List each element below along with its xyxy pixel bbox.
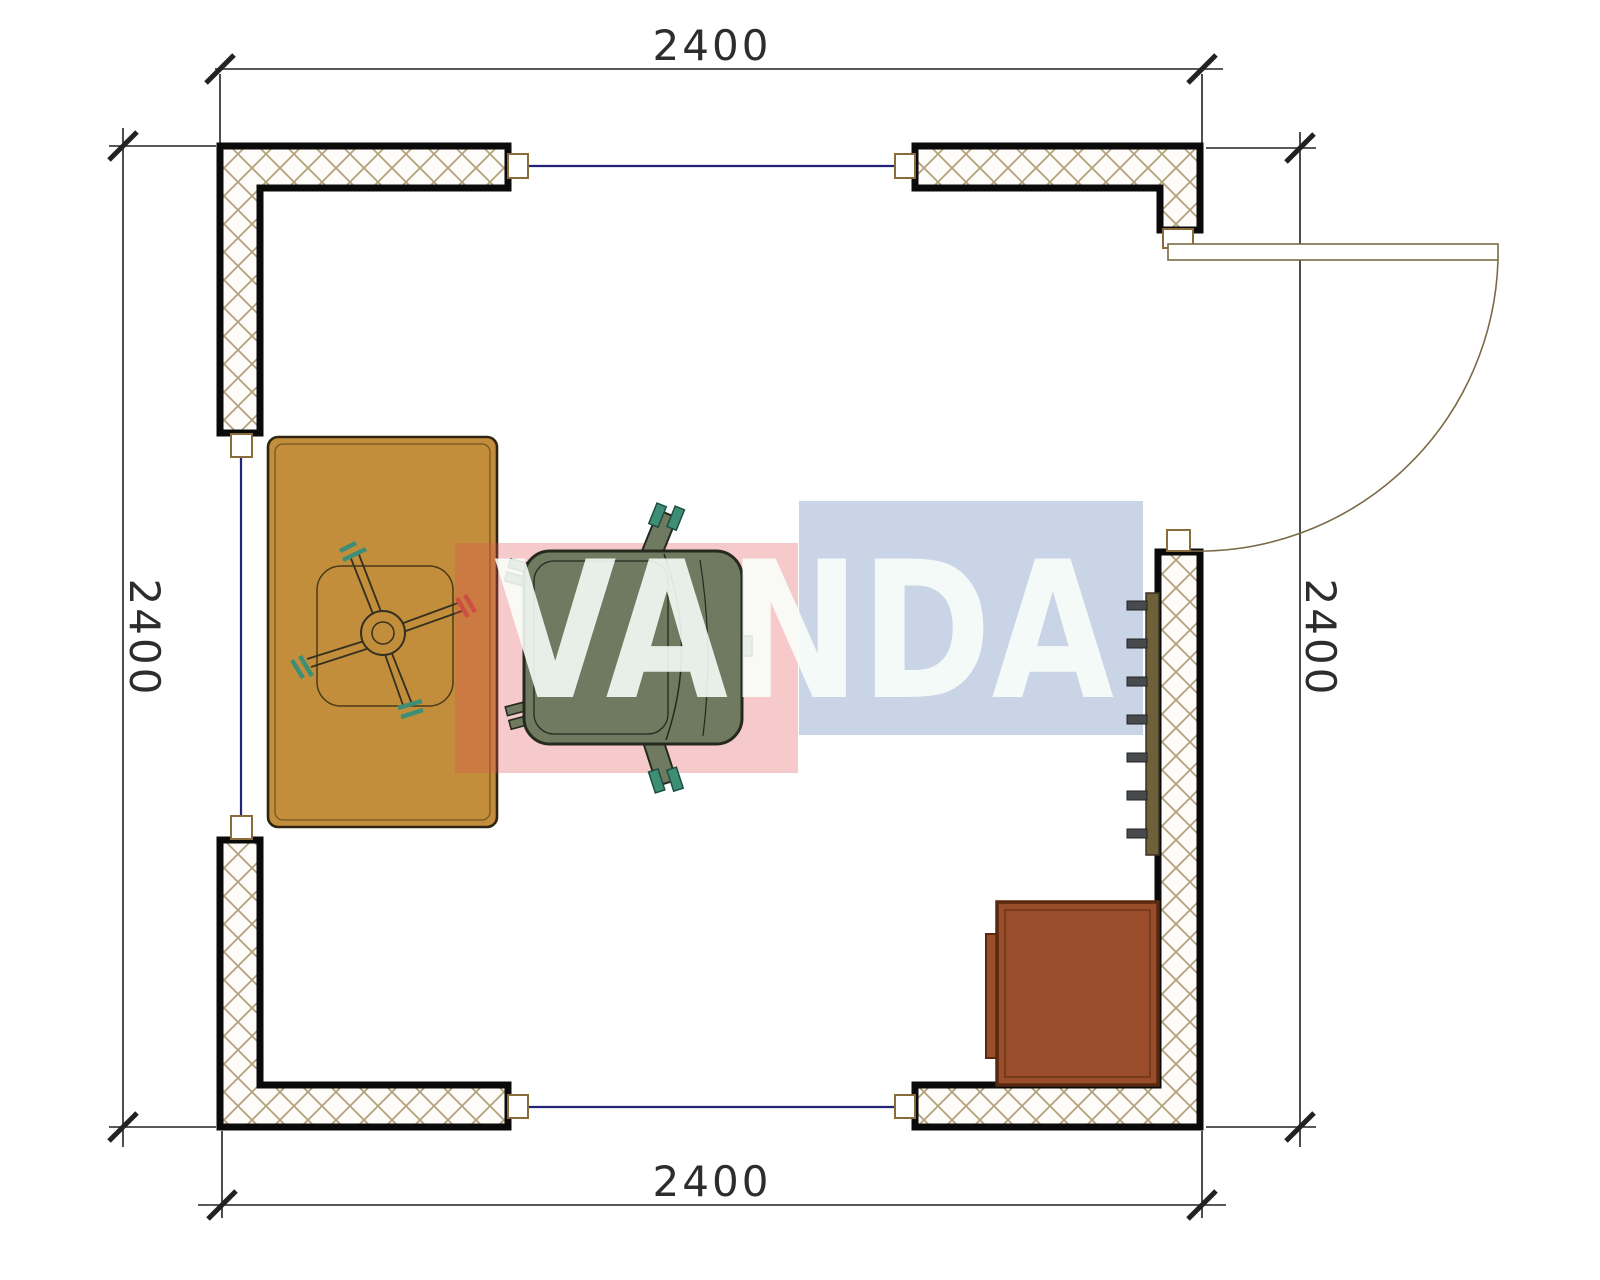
dimension-label-right: 2400 [1296, 579, 1345, 698]
radiator-fin [1127, 753, 1147, 762]
radiator-fin [1127, 677, 1147, 686]
wall-bottom-left [220, 840, 508, 1127]
floor-plan-canvas: 2400 2400 2400 2400 [0, 0, 1600, 1280]
cabinet [986, 902, 1158, 1085]
radiator-fin [1127, 601, 1147, 610]
dimension-label-left: 2400 [120, 579, 169, 698]
radiator-bar [1146, 593, 1159, 855]
radiator-fin [1127, 639, 1147, 648]
door-jamb-bottom [1167, 530, 1190, 551]
wall-top-left [220, 146, 508, 433]
floor-plan-drawing: 2400 2400 2400 2400 [0, 0, 1600, 1280]
watermark-text: VANDA [494, 521, 1114, 742]
window-frame-connector [231, 816, 252, 839]
window-frame-connector [895, 1095, 915, 1118]
window-frame-connector [231, 434, 252, 457]
wall-top-right [915, 146, 1200, 230]
radiator-fin [1127, 829, 1147, 838]
window-frame-connector [508, 1095, 528, 1118]
radiator-fin [1127, 715, 1147, 724]
dimension-label-top: 2400 [653, 21, 772, 70]
door-leaf [1168, 244, 1498, 260]
radiator-fin [1127, 791, 1147, 800]
dimension-label-bottom: 2400 [653, 1157, 772, 1206]
door-swing-arc [1190, 260, 1498, 551]
window-frame-connector [895, 154, 915, 178]
window-frame-connector [508, 154, 528, 178]
door [1163, 229, 1498, 551]
cabinet-body [997, 902, 1158, 1085]
